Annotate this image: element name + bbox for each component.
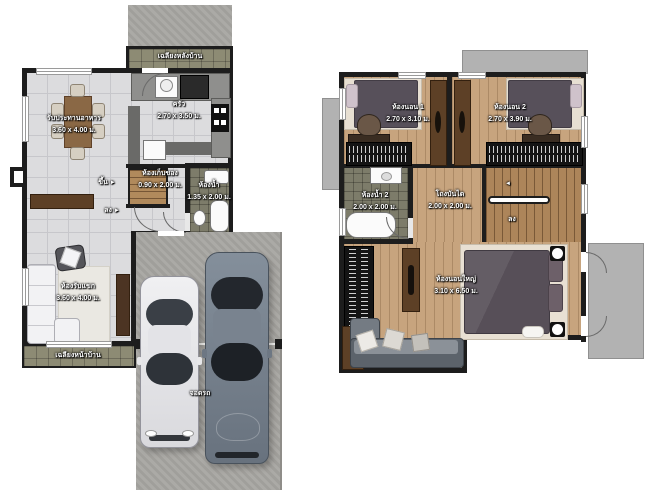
- gate-post: [275, 339, 282, 349]
- car-mirror: [137, 357, 142, 365]
- closet-bedroom1: [346, 142, 412, 166]
- stove-top: [180, 75, 209, 99]
- stair-arrow: ◄: [505, 178, 511, 190]
- window: [22, 96, 29, 142]
- stair-handrail: [488, 196, 550, 204]
- sofa-pillow: [411, 333, 430, 352]
- bed-sheet-roll: [522, 326, 544, 338]
- window: [36, 68, 92, 75]
- front-porch-label: เฉลียงหน้าบ้าน: [55, 350, 100, 362]
- floorplan-canvas: เฉลียงหลังบ้าน: [0, 0, 648, 500]
- sofa: [27, 264, 56, 344]
- burner: [221, 120, 226, 125]
- driveway-edge: [280, 232, 282, 490]
- back-porch-label: เฉลียงหลังบ้าน: [158, 51, 202, 63]
- kitchen-label: ครัว2.70 x 3.50 ม.: [157, 99, 201, 123]
- car-headlight: [145, 430, 157, 437]
- car-hood-line: [216, 413, 260, 441]
- sink-basin: [381, 172, 392, 181]
- roof-left: [322, 98, 340, 190]
- gas-stove: [211, 104, 229, 132]
- sideboard: [30, 194, 94, 209]
- kitchen-back-door-gap: [142, 68, 168, 73]
- wardrobe-bedroom1: [430, 80, 447, 166]
- car-white: [140, 276, 199, 448]
- window: [398, 72, 426, 79]
- master-pillow: [548, 284, 563, 312]
- dining-label: รับประทานอาหาร3.60 x 4.00 ม.: [47, 113, 101, 137]
- side-door-gap: [158, 231, 184, 236]
- stair-hall-label: โถงบันได2.00 x 2.00 ม.: [428, 189, 472, 213]
- parking-label: จอดรถ: [190, 388, 211, 400]
- planter-box: [10, 167, 27, 187]
- wardrobe-handle: [435, 111, 441, 133]
- back-slab: [128, 5, 232, 48]
- bathroom1-label: ห้องน้ำ1.35 x 2.00 ม.: [187, 180, 231, 204]
- up-arrow-icon: ►: [110, 180, 116, 186]
- down-arrow-icon: ►: [114, 208, 120, 214]
- window: [581, 184, 588, 214]
- wall: [339, 239, 413, 244]
- car-windshield: [211, 343, 263, 381]
- wardrobe-bedroom2: [454, 80, 471, 166]
- car-grille: [215, 452, 259, 458]
- wardrobe-handle: [459, 111, 465, 133]
- stairs-down-label: ลง ►: [104, 205, 120, 217]
- bathroom2-label: ห้องน้ำ 22.00 x 2.00 ม.: [353, 190, 397, 214]
- burner: [221, 108, 226, 113]
- wall: [447, 72, 452, 167]
- kitchen-partition-h: [166, 142, 214, 155]
- living-label: ห้องรับแขก3.60 x 4.00 ม.: [56, 281, 100, 305]
- bedroom1-label: ห้องนอน 12.70 x 3.10 ม.: [386, 102, 430, 126]
- wall: [482, 164, 486, 242]
- bathroom2-door-gap: [408, 218, 413, 238]
- tv-cabinet-master: [402, 248, 420, 312]
- bedside-lamp: [550, 246, 565, 261]
- sliding-door: [46, 341, 112, 348]
- stairs-down2-label: ลง: [508, 214, 516, 226]
- window: [581, 116, 588, 148]
- dining-chair: [70, 147, 85, 160]
- storage-label: ห้องเก็บของ0.90 x 2.00 ม.: [138, 168, 182, 192]
- window: [339, 208, 346, 236]
- kitchen-partition-v: [128, 106, 140, 166]
- car-headlight: [182, 430, 194, 437]
- car-mirror: [197, 357, 202, 365]
- dining-chair: [70, 84, 85, 97]
- burner: [214, 108, 219, 113]
- bed2-pillow: [570, 84, 582, 108]
- roof-top: [462, 50, 588, 74]
- bed1-pillow: [346, 84, 358, 108]
- window: [22, 268, 29, 306]
- floor2-plan: ◄ ห้อ: [300, 0, 648, 500]
- car-rear-window: [211, 277, 263, 313]
- master-bedroom-label: ห้องนอนใหญ่3.10 x 6.50 ม.: [434, 274, 478, 298]
- floor1-plan: เฉลียงหลังบ้าน: [0, 0, 300, 500]
- tv: [408, 265, 414, 295]
- chair1: [357, 114, 381, 136]
- toilet: [193, 210, 206, 226]
- closet-bedroom2: [486, 142, 583, 166]
- bathroom2-sink: [370, 167, 402, 184]
- bathtub: [210, 200, 229, 232]
- bathroom1-door-gap: [185, 213, 190, 231]
- left-arrow-icon: ◄: [505, 181, 511, 187]
- window: [339, 88, 346, 120]
- window: [458, 72, 486, 79]
- car-mirror: [202, 349, 207, 358]
- car-gray: [205, 252, 269, 464]
- burner: [214, 120, 219, 125]
- wall: [185, 163, 233, 168]
- stairs-up-label: ขึ้น ►: [98, 177, 115, 189]
- refrigerator: [143, 140, 166, 160]
- tv-cabinet: [116, 274, 130, 336]
- car-windshield: [146, 353, 193, 385]
- bedside-lamp: [550, 322, 565, 337]
- bedroom2-label: ห้องนอน 22.70 x 3.90 ม.: [488, 102, 532, 126]
- car-roof: [213, 309, 261, 347]
- car-mirror: [267, 349, 272, 358]
